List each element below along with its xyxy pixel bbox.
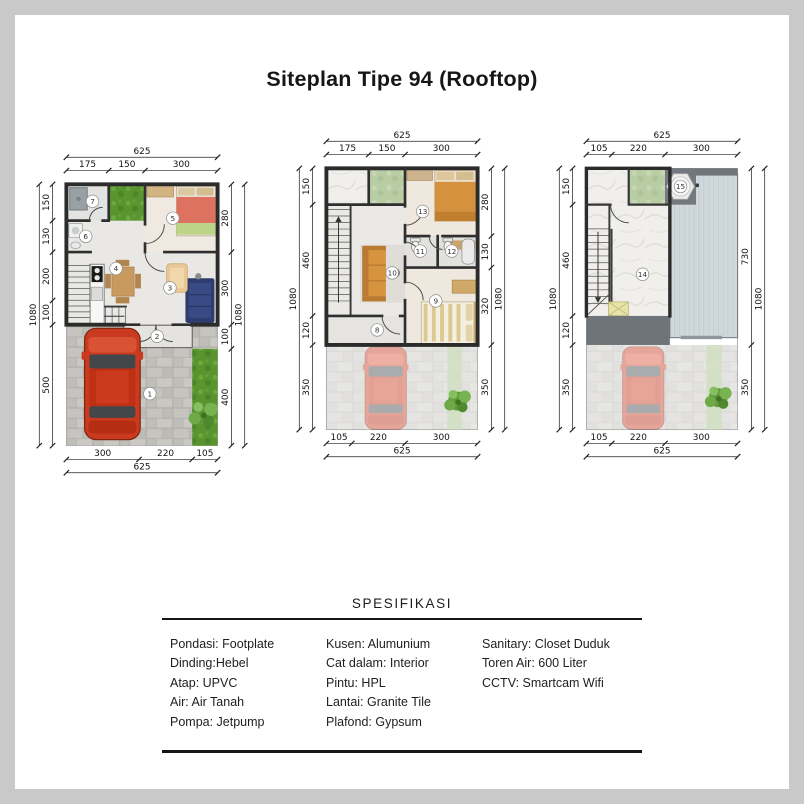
room-badge-15: 15 [674,180,687,193]
wardrobe [147,186,174,197]
dim-right-total: 1080 [494,166,507,433]
dimension-label: 105 [591,433,608,443]
dimension-label: 100 [221,328,231,345]
room-badge-3: 3 [164,282,177,295]
svg-text:8: 8 [375,326,380,335]
bed-9 [421,302,476,344]
dim-bottom-segments: 105220300 [324,433,481,446]
dim-bottom-total: 625 [584,446,741,459]
page-title: Siteplan Tipe 94 (Rooftop) [15,67,789,92]
dim-left-total: 1080 [549,166,562,433]
desk [407,169,432,180]
dimension-label: 220 [157,449,174,459]
dim-top-total: 625 [64,147,221,160]
dimension-label: 220 [630,433,647,443]
dimension-label: 300 [173,160,190,170]
dimension-label: 120 [302,322,312,339]
dimension-label: 200 [42,267,52,284]
floor-plan-rooftop: 14 15 625 105220300 105220300 625 150460… [544,126,780,472]
room-badge-10: 10 [386,267,399,280]
svg-text:1: 1 [148,389,153,398]
inner-garden [629,168,665,204]
specifications-section: SPESIFIKASI Pondasi: Footplate Dinding:H… [162,596,642,753]
dimension-label: 105 [196,449,213,459]
svg-text:14: 14 [638,270,648,279]
room-badge-6: 6 [79,230,92,243]
floor-plan-ground: 1 2 3 4 5 6 7 625 175150300 300220105 62… [24,142,260,488]
svg-text:5: 5 [171,214,176,223]
dimension-label: 350 [302,378,312,395]
dim-bottom-total: 625 [324,446,481,459]
dimension-label: 320 [481,297,491,314]
room8-floor [326,316,405,345]
shower [70,188,87,210]
specifications-table: Pondasi: Footplate Dinding:Hebel Atap: U… [162,618,642,753]
dim-left-segments: 150460120350 [562,166,575,433]
dimension-label: 280 [221,209,231,226]
dimension-label: 300 [693,433,710,443]
room-badge-2: 2 [151,330,164,343]
spec-item: Atap: UPVC [170,674,326,693]
dim-right-segments: 280300100400 [221,182,234,449]
dimension-label: 300 [433,144,450,154]
dimension-label: 120 [562,322,572,339]
dimension-label: 1080 [234,303,244,326]
svg-text:3: 3 [168,284,173,293]
sofa [185,278,214,323]
dimension-label: 350 [741,378,751,395]
spec-column-2: Kusen: Alumunium Cat dalam: Interior Pin… [326,635,482,732]
room-badge-1: 1 [144,387,157,400]
inner-garden [369,168,405,204]
dimension-label: 300 [94,449,111,459]
spec-item: Dinding:Hebel [170,654,326,673]
svg-text:4: 4 [114,264,119,273]
car [82,328,143,439]
dimension-label: 300 [221,280,231,297]
dimension-label: 625 [653,131,670,141]
dimension-label: 280 [481,193,491,210]
dimension-label: 300 [693,144,710,154]
spec-item: Plafond: Gypsum [326,713,482,732]
svg-text:12: 12 [447,247,456,256]
balcony-floor [326,168,368,204]
balcony-floor [586,168,628,204]
spec-column-1: Pondasi: Footplate Dinding:Hebel Atap: U… [170,635,326,732]
dimension-label: 220 [370,433,387,443]
bed-13 [435,170,476,221]
room-badge-12: 12 [445,245,458,258]
dimension-label: 175 [79,160,96,170]
dimension-label: 150 [42,194,52,211]
dimension-label: 100 [42,304,52,321]
sofa [362,246,386,302]
svg-text:9: 9 [433,297,438,306]
room-badge-13: 13 [416,205,429,218]
dimension-label: 1080 [754,287,764,310]
room-badge-9: 9 [429,295,442,308]
kitchen-sink [92,287,103,300]
dimension-label: 460 [562,251,572,268]
garden-strip [447,345,462,430]
spec-item: Lantai: Granite Tile [326,693,482,712]
dimension-label: 625 [133,147,150,157]
dim-right-total: 1080 [234,182,247,449]
spec-column-3: Sanitary: Closet Duduk Toren Air: 600 Li… [482,635,638,732]
svg-text:15: 15 [676,182,685,191]
room-badge-14: 14 [636,268,649,281]
dimension-label: 1080 [289,287,299,310]
floor-plans-row: 1 2 3 4 5 6 7 625 175150300 300220105 62… [15,126,789,488]
side-table [195,273,201,279]
canopy-flat-roof [586,316,669,345]
room-badge-11: 11 [414,245,427,258]
dimension-label: 625 [653,446,670,456]
dimension-label: 350 [562,378,572,395]
skylight-hatch [609,302,629,316]
dimension-label: 300 [433,433,450,443]
dim-top-segments: 175150300 [64,160,221,173]
svg-text:2: 2 [155,332,160,341]
dim-top-total: 625 [584,131,741,144]
spec-item: Cat dalam: Interior [326,654,482,673]
spec-item: Toren Air: 600 Liter [482,654,638,673]
svg-text:10: 10 [388,269,398,278]
spec-item: Pondasi: Footplate [170,635,326,654]
spec-item: Pompa: Jetpump [170,713,326,732]
dimension-label: 500 [42,376,52,393]
dimension-label: 130 [42,228,52,245]
dim-bottom-segments: 300220105 [64,449,221,462]
dimension-label: 150 [378,144,395,154]
dimension-label: 175 [339,144,356,154]
bed [176,186,215,236]
dimension-label: 105 [331,433,348,443]
dim-left-segments: 150460120350 [302,166,315,433]
room-badge-4: 4 [110,262,123,275]
dimension-label: 1080 [549,287,559,310]
spec-item: Air: Air Tanah [170,693,326,712]
specifications-title: SPESIFIKASI [162,596,642,611]
dimension-label: 220 [630,144,647,154]
dimension-label: 150 [562,178,572,195]
spec-item: Pintu: HPL [326,674,482,693]
dimension-label: 460 [302,251,312,268]
dimension-label: 625 [393,446,410,456]
dimension-label: 625 [393,131,410,141]
floor-plan-second: 8 9 10 11 12 13 625 175150300 105220300 … [284,126,520,472]
svg-text:11: 11 [416,247,425,256]
svg-text:13: 13 [418,207,428,216]
dimension-label: 150 [118,160,135,170]
dim-bottom-segments: 105220300 [584,433,741,446]
svg-text:6: 6 [83,232,88,241]
dim-left-total: 1080 [289,166,302,433]
spec-item: Kusen: Alumunium [326,635,482,654]
dim-right-total: 1080 [754,166,767,433]
garden-strip [192,349,217,446]
kitchen-counter [90,264,104,324]
bathtub [462,239,475,264]
dimension-label: 105 [591,144,608,154]
dim-left-segments: 150130200100500 [42,182,55,449]
dim-top-total: 625 [324,131,481,144]
dim-top-segments: 175150300 [324,144,481,157]
room-badge-8: 8 [371,324,384,337]
dimension-label: 350 [481,378,491,395]
dim-top-segments: 105220300 [584,144,741,157]
desk-9 [452,280,476,293]
spec-item: Sanitary: Closet Duduk [482,635,638,654]
room-badge-5: 5 [167,212,180,225]
dimension-label: 625 [133,462,150,472]
dimension-label: 400 [221,388,231,405]
dimension-label: 1080 [494,287,504,310]
dimension-label: 730 [741,248,751,265]
dim-right-segments: 730350 [741,166,754,433]
svg-text:7: 7 [90,197,95,206]
room-badge-7: 7 [86,195,99,208]
sheet-page: Siteplan Tipe 94 (Rooftop) [15,15,789,789]
inner-garden [109,184,145,220]
dimension-label: 1080 [29,303,39,326]
dim-right-segments: 280130320350 [481,166,494,433]
dim-bottom-total: 625 [64,462,221,475]
dim-left-total: 1080 [29,182,42,449]
spec-item: CCTV: Smartcam Wifi [482,674,638,693]
dimension-label: 130 [481,243,491,260]
dimension-label: 150 [302,178,312,195]
